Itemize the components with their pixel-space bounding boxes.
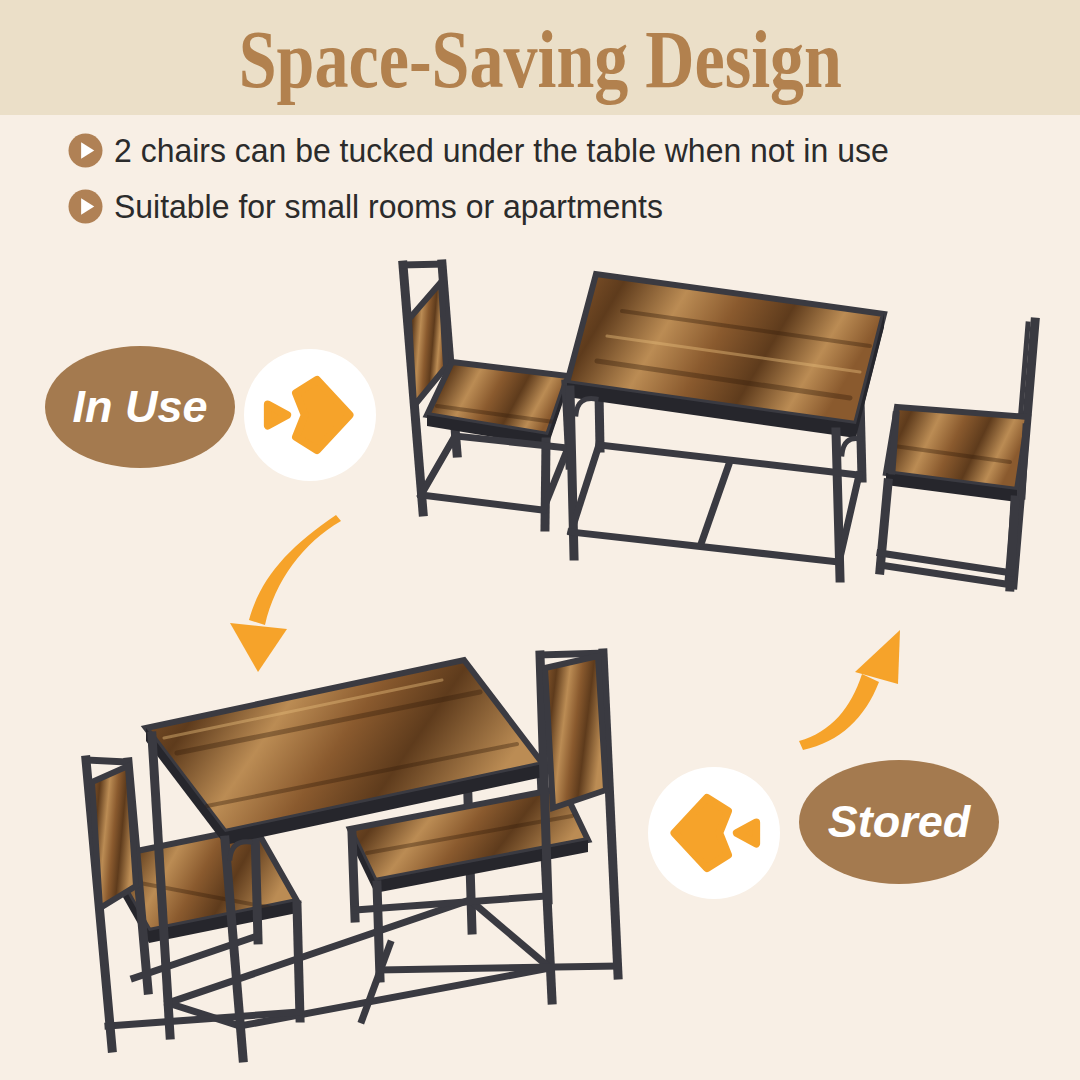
- transition-badge: [244, 349, 376, 481]
- left-chair: [403, 264, 570, 527]
- feature-list: 2 chairs can be tucked under the table w…: [68, 132, 938, 244]
- stored-label-text: Stored: [828, 796, 971, 848]
- product-infographic: Space-Saving Design 2 chairs can be tuck…: [0, 0, 1080, 1080]
- feature-text: Suitable for small rooms or apartments: [114, 187, 663, 226]
- stored-label: Stored: [799, 760, 999, 884]
- in-use-label: In Use: [45, 346, 235, 468]
- feature-item: Suitable for small rooms or apartments: [68, 188, 938, 224]
- in-use-product-image: [382, 246, 1080, 651]
- double-arrow-left-icon: [656, 775, 772, 891]
- feature-item: 2 chairs can be tucked under the table w…: [68, 132, 938, 168]
- stored-product-image: [72, 648, 712, 1078]
- table: [567, 274, 884, 578]
- page-title: Space-Saving Design: [238, 9, 841, 107]
- in-use-label-text: In Use: [72, 381, 207, 433]
- double-arrow-right-icon: [252, 357, 368, 473]
- curved-arrow-down-icon: [215, 505, 365, 680]
- right-chair: [880, 322, 1035, 587]
- curved-arrow-up-icon: [795, 612, 915, 767]
- header-band: Space-Saving Design: [0, 0, 1080, 115]
- play-circle-icon: [68, 133, 103, 168]
- feature-text: 2 chairs can be tucked under the table w…: [114, 131, 889, 170]
- play-circle-icon: [68, 189, 103, 224]
- left-chair-back: [86, 760, 148, 1048]
- transition-badge: [648, 767, 780, 899]
